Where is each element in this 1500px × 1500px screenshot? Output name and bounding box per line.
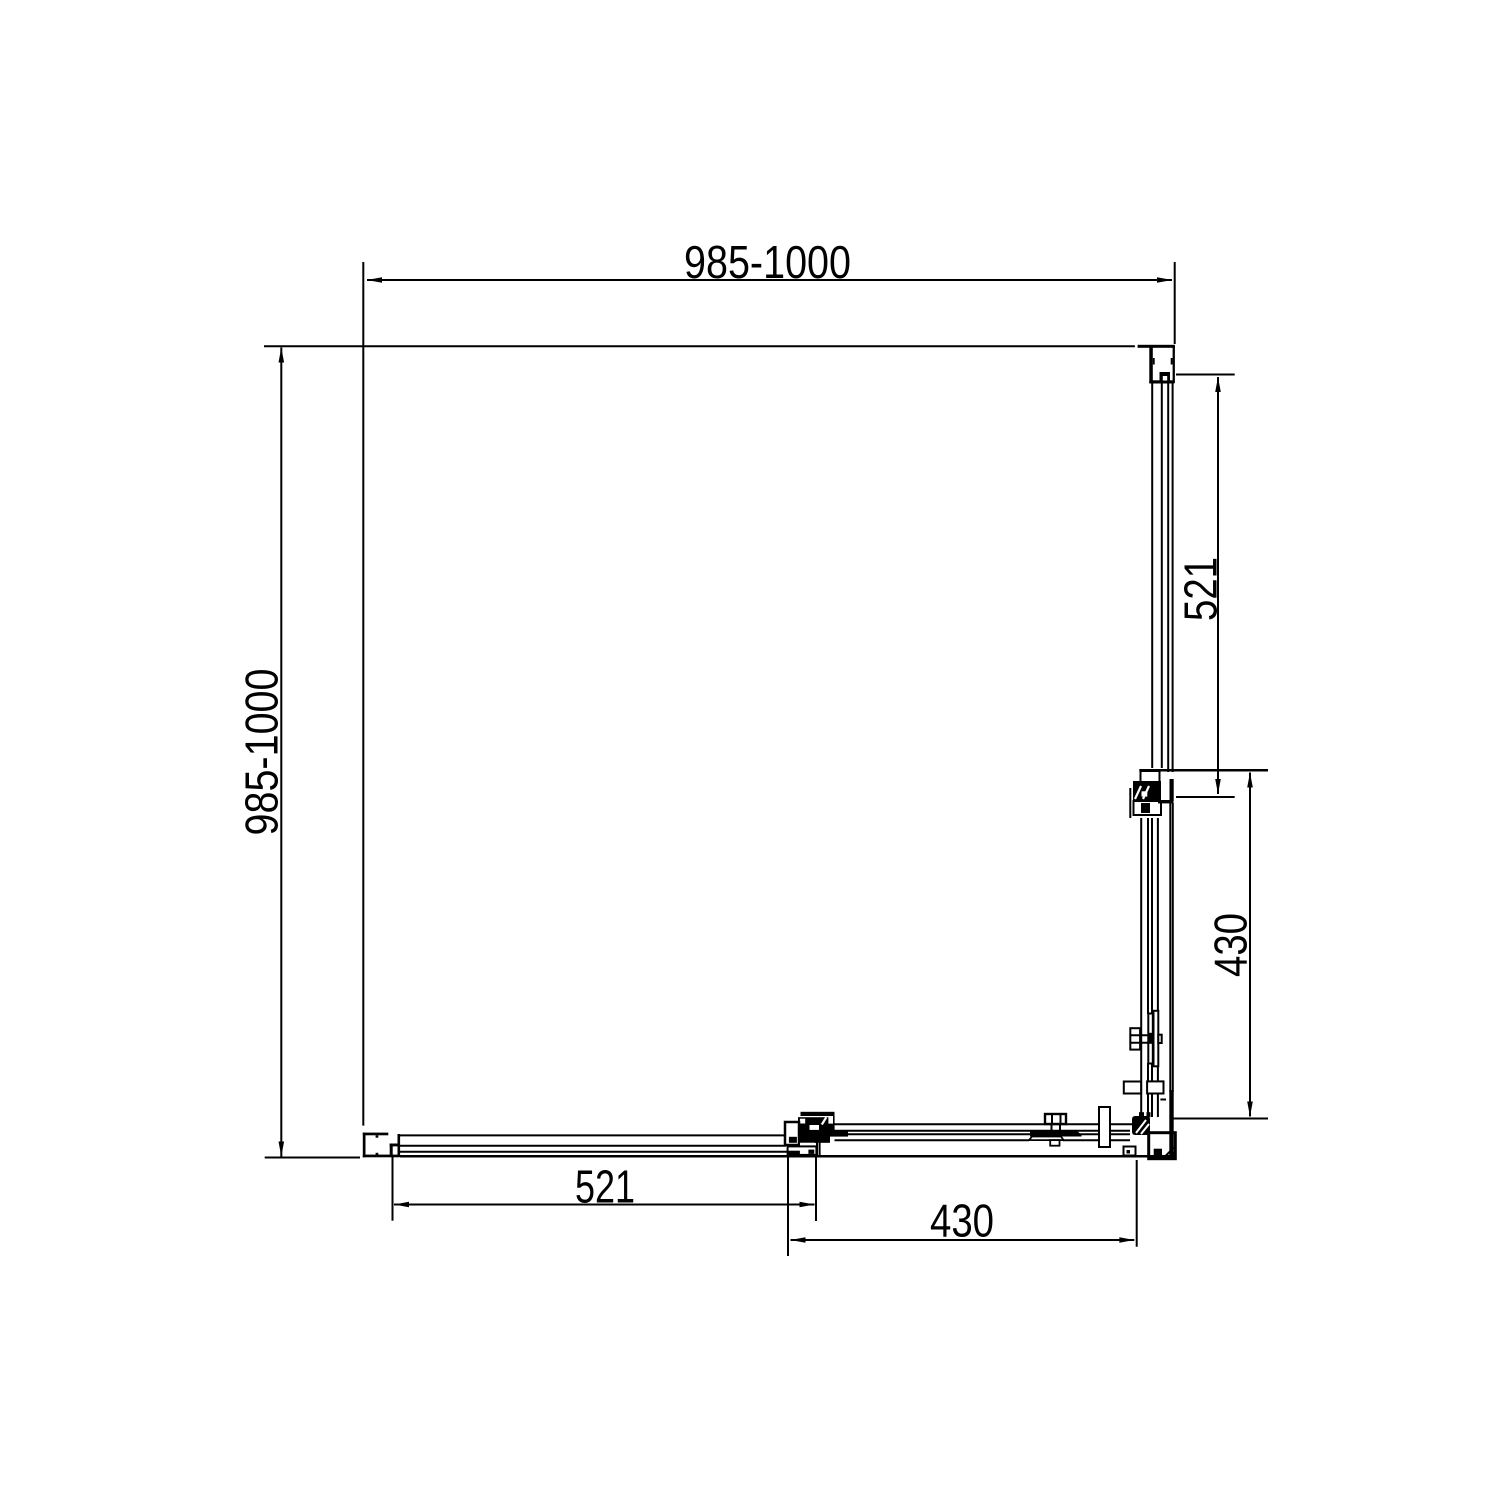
svg-text:985-1000: 985-1000 bbox=[236, 669, 288, 836]
svg-text:430: 430 bbox=[1205, 913, 1257, 977]
svg-text:430: 430 bbox=[930, 1195, 994, 1247]
svg-text:521: 521 bbox=[1175, 557, 1227, 621]
svg-text:985-1000: 985-1000 bbox=[684, 236, 851, 288]
svg-text:521: 521 bbox=[575, 1161, 635, 1213]
